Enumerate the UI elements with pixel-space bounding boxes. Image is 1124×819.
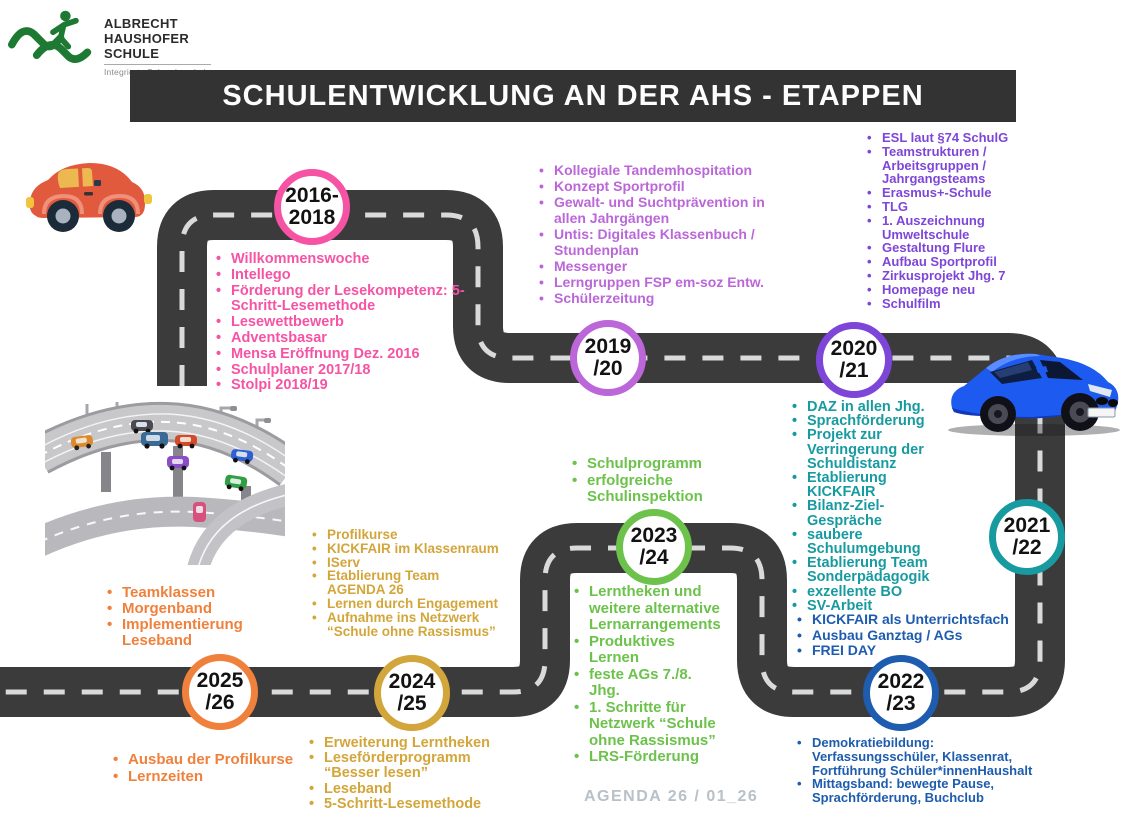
list-item: Profilkurse: [311, 528, 499, 542]
milestone-2023-24-items-above: Schulprogrammerfolgreiche Schulinspektio…: [571, 456, 731, 506]
milestone-2019-20-items: Kollegiale TandemhospitationKonzept Spor…: [538, 162, 778, 306]
milestone-year: 2018: [289, 207, 336, 229]
list-item: Mittagsband: bewegte Pause, Sprachförder…: [796, 777, 1048, 805]
list-item: feste AGs 7./8. Jhg.: [573, 667, 723, 700]
red-car-illustration: [22, 150, 157, 245]
list-item: saubere Schulumgebung: [791, 528, 956, 556]
list-item: IServ: [311, 556, 499, 570]
list-item: Projekt zur Verringerung der Schuldistan…: [791, 428, 956, 471]
list-item: Ausbau der Profilkurse: [112, 751, 332, 768]
milestone-year: /25: [397, 693, 426, 715]
milestone-2023-24: 2023 /24: [616, 509, 692, 585]
blue-car-illustration: [942, 342, 1124, 438]
list-item: exzellente BO: [791, 585, 956, 599]
list-item: Lerngruppen FSP em-soz Entw.: [538, 274, 778, 290]
milestone-2016-2018-items: WillkommenswocheIntellegoFörderung der L…: [215, 252, 515, 394]
milestone-year: 2022: [878, 671, 925, 693]
list-item: Leseförderprogramm “Besser lesen”: [308, 751, 503, 781]
tiny-van: [141, 432, 168, 449]
milestone-year: 2024: [389, 671, 436, 693]
schulentwicklung-poster: ALBRECHT HAUSHOFER SCHULE Integrierte Se…: [0, 0, 1124, 819]
list-item: Gewalt- und Suchtprävention in allen Jah…: [538, 194, 778, 226]
milestone-2025-26-items-below: Ausbau der ProfilkurseLernzeiten: [112, 751, 332, 785]
milestone-2022-23: 2022 /23: [863, 655, 939, 731]
list-item: Produktives Lernen: [573, 634, 723, 667]
list-item: Morgenband: [106, 601, 261, 617]
list-item: 5-Schritt-Lesemethode: [308, 797, 503, 812]
list-item: Bilanz-Ziel-Gespräche: [791, 499, 956, 527]
milestone-year: 2019: [585, 336, 632, 358]
milestone-2021-22: 2021 /22: [989, 499, 1065, 575]
list-item: Etablierung Team Sonderpädagogik: [791, 556, 956, 584]
tiny-car: [175, 435, 197, 448]
list-item: Intellego: [215, 268, 515, 284]
milestone-year: /26: [205, 692, 234, 714]
list-item: erfolgreiche Schulinspektion: [571, 473, 731, 506]
milestone-2024-25-items-below: Erweiterung LernthekenLeseförderprogramm…: [308, 736, 503, 812]
list-item: DAZ in allen Jhg.: [791, 400, 956, 414]
list-item: 1. Schritte für Netzwerk “Schule ohne Ra…: [573, 700, 723, 750]
list-item: Stolpi 2018/19: [215, 378, 515, 394]
list-item: Erweiterung Lerntheken: [308, 736, 503, 751]
list-item: 1. Auszeichnung Umweltschule: [866, 214, 1041, 242]
list-item: Aufbau Sportprofil: [866, 255, 1041, 269]
milestone-2022-23-items-above: KICKFAIR als UnterrichtsfachAusbau Ganzt…: [796, 612, 1056, 659]
list-item: ESL laut §74 SchulG: [866, 131, 1041, 145]
milestone-2019-20: 2019 /20: [570, 320, 646, 396]
milestone-2024-25-items-above: ProfilkurseKICKFAIR im KlassenraumIServE…: [311, 528, 499, 638]
list-item: Teamklassen: [106, 585, 261, 601]
list-item: Lernzeiten: [112, 768, 332, 785]
list-item: Messenger: [538, 258, 778, 274]
list-item: Homepage neu: [866, 283, 1041, 297]
list-item: Förderung der Lesekompetenz: 5-Schritt-L…: [215, 284, 515, 316]
list-item: TLG: [866, 200, 1041, 214]
list-item: KICKFAIR als Unterrichtsfach: [796, 612, 1056, 628]
milestone-year: /23: [886, 693, 915, 715]
list-item: Erasmus+-Schule: [866, 186, 1041, 200]
list-item: Lerntheken und weitere alternative Lerna…: [573, 584, 723, 634]
milestone-year: 2025: [197, 670, 244, 692]
list-item: Adventsbasar: [215, 331, 515, 347]
milestone-year: /21: [839, 360, 868, 382]
list-item: Schulplaner 2017/18: [215, 363, 515, 379]
footer-label: AGENDA 26 / 01_26: [584, 788, 758, 806]
milestone-2016-2018: 2016- 2018: [274, 169, 350, 245]
milestone-year: /24: [639, 547, 668, 569]
list-item: Mensa Eröffnung Dez. 2016: [215, 347, 515, 363]
list-item: Lesewettbewerb: [215, 315, 515, 331]
list-item: FREI DAY: [796, 643, 1056, 659]
list-item: Teamstrukturen / Arbeitsgruppen / Jahrga…: [866, 145, 1041, 186]
milestone-year: 2021: [1004, 515, 1051, 537]
highway-interchange-illustration: [45, 390, 285, 565]
list-item: Leseband: [308, 782, 503, 797]
list-item: Untis: Digitales Klassenbuch / Stundenpl…: [538, 226, 778, 258]
page-title-banner: SCHULENTWICKLUNG AN DER AHS - ETAPPEN: [130, 70, 1016, 122]
milestone-2024-25: 2024 /25: [374, 655, 450, 731]
tiny-car: [193, 502, 206, 522]
list-item: Lernen durch Engagement: [311, 597, 499, 611]
list-item: Demokratiebildung: Verfassungsschüler, K…: [796, 736, 1048, 777]
list-item: LRS-Förderung: [573, 749, 723, 766]
milestone-2025-26: 2025 /26: [182, 654, 258, 730]
list-item: Schulprogramm: [571, 456, 731, 473]
list-item: Sprachförderung: [791, 414, 956, 428]
milestone-2025-26-items-above: TeamklassenMorgenbandImplementierung Les…: [106, 585, 261, 649]
milestone-year: /22: [1012, 537, 1041, 559]
page-title: SCHULENTWICKLUNG AN DER AHS - ETAPPEN: [222, 80, 923, 113]
milestone-year: /20: [593, 358, 622, 380]
milestone-2021-22-items: DAZ in allen Jhg.SprachförderungProjekt …: [791, 400, 956, 613]
milestone-year: 2023: [631, 525, 678, 547]
list-item: Ausbau Ganztag / AGs: [796, 628, 1056, 644]
list-item: Zirkusprojekt Jhg. 7: [866, 269, 1041, 283]
list-item: KICKFAIR im Klassenraum: [311, 542, 499, 556]
list-item: Gestaltung Flure: [866, 241, 1041, 255]
list-item: Etablierung Team AGENDA 26: [311, 569, 499, 597]
list-item: Schülerzeitung: [538, 290, 778, 306]
milestone-2020-21: 2020 /21: [816, 322, 892, 398]
list-item: Willkommenswoche: [215, 252, 515, 268]
milestone-2022-23-items-below: Demokratiebildung: Verfassungsschüler, K…: [796, 736, 1048, 805]
list-item: Kollegiale Tandemhospitation: [538, 162, 778, 178]
milestone-2020-21-items: ESL laut §74 SchulGTeamstrukturen / Arbe…: [866, 131, 1041, 310]
list-item: Schulfilm: [866, 297, 1041, 311]
list-item: Aufnahme ins Netzwerk “Schule ohne Rassi…: [311, 611, 499, 639]
list-item: Konzept Sportprofil: [538, 178, 778, 194]
milestone-year: 2020: [831, 338, 878, 360]
milestone-year: 2016-: [285, 185, 339, 207]
list-item: Implementierung Leseband: [106, 617, 261, 649]
milestone-2023-24-items-below: Lerntheken und weitere alternative Lerna…: [573, 584, 723, 766]
list-item: Etablierung KICKFAIR: [791, 471, 956, 499]
